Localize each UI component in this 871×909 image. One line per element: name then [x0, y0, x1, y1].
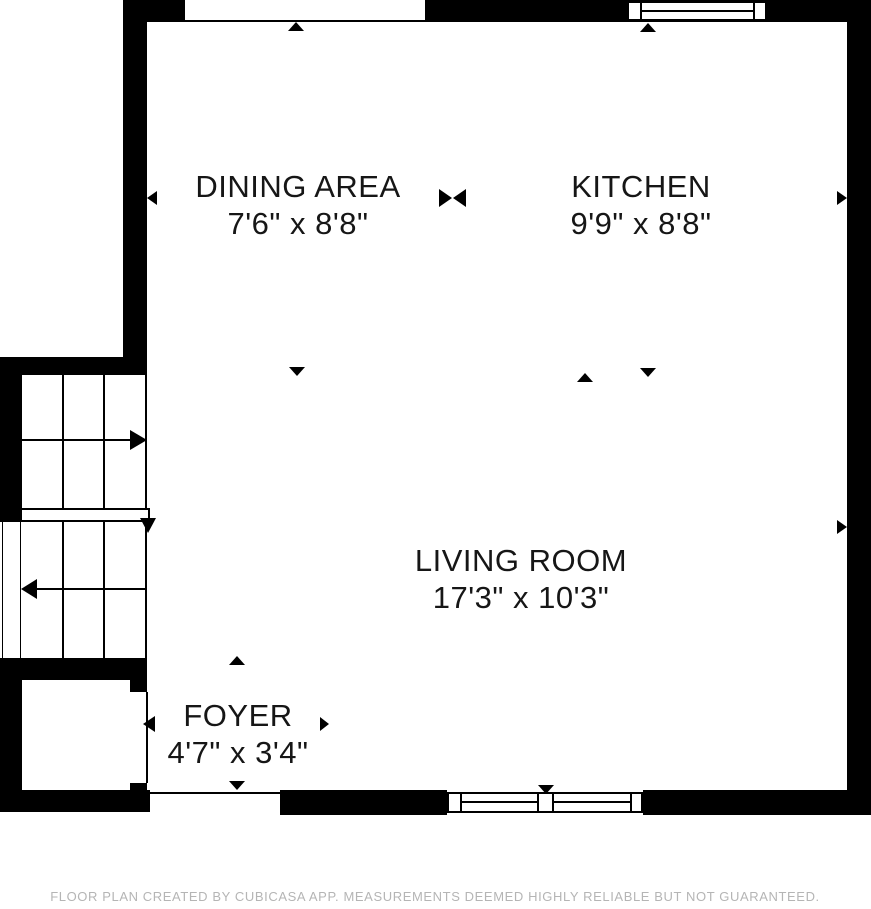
room-label-foyer: FOYER 4'7" x 3'4" [167, 697, 308, 771]
wall-bottom-right-segment [643, 790, 871, 815]
flow-arrow-up-icon [577, 373, 593, 382]
wall-closet-right-upper [130, 658, 147, 692]
window-bottom [447, 792, 643, 813]
flow-arrow-down-icon [640, 368, 656, 377]
flow-arrow-up-icon [288, 22, 304, 31]
wall-closet-right-lower [130, 783, 147, 812]
foyer-opening-arrow-icon [320, 717, 329, 731]
stair-tread-line [103, 375, 105, 508]
opening-line-foyer-entry [150, 792, 280, 794]
wall-arrow-right-icon [837, 191, 847, 205]
floor-plan: DINING AREA 7'6" x 8'8" KITCHEN 9'9" x 8… [0, 0, 871, 909]
bowtie-left-half [453, 189, 466, 207]
room-name: DINING AREA [195, 168, 400, 205]
wall-arrow-left-icon [147, 191, 157, 205]
room-label-living-room: LIVING ROOM 17'3" x 10'3" [415, 542, 627, 616]
flow-arrow-up-icon [229, 656, 245, 665]
stair-arrow-right-icon [130, 430, 147, 450]
stair-arrow-down-icon [140, 518, 156, 533]
attribution-text: FLOOR PLAN CREATED BY CUBICASA APP. MEAS… [50, 889, 820, 904]
room-dimensions: 9'9" x 8'8" [570, 205, 711, 242]
stair-arrow-shaft-down-flight [36, 588, 146, 590]
window-top [627, 1, 767, 21]
stair-landing [20, 508, 150, 522]
window-center-line [554, 801, 630, 803]
closet-door-line [146, 692, 148, 783]
opening-line-top [185, 20, 425, 22]
room-dimensions: 17'3" x 10'3" [415, 579, 627, 616]
wall-closet-bottom [0, 790, 150, 812]
stair-arrow-shaft-up-flight [22, 439, 134, 441]
flow-arrow-down-icon [229, 781, 245, 790]
wall-left-outer-lower [0, 658, 22, 812]
window-center-line [462, 801, 537, 803]
flow-arrow-up-icon [640, 23, 656, 32]
room-divider-bowtie-icon [439, 189, 466, 207]
wall-bottom-left-segment [280, 790, 447, 815]
room-name: LIVING ROOM [415, 542, 627, 579]
window-frame-line [753, 3, 755, 19]
stair-tread-line [103, 522, 105, 658]
stair-edge-line [145, 522, 147, 658]
room-name: FOYER [167, 697, 308, 734]
wall-stair-top [0, 357, 147, 375]
stair-edge-line [2, 522, 3, 658]
room-dimensions: 7'6" x 8'8" [195, 205, 400, 242]
stair-tread-line [62, 375, 64, 508]
room-dimensions: 4'7" x 3'4" [167, 734, 308, 771]
wall-stair-bottom [0, 658, 147, 680]
flow-arrow-down-icon [289, 367, 305, 376]
stair-arrow-left-icon [21, 579, 37, 599]
window-mullion-line [537, 794, 539, 811]
window-frame-line [630, 794, 632, 811]
room-name: KITCHEN [570, 168, 711, 205]
closet-door-arrow-icon [143, 716, 155, 732]
wall-right [847, 0, 871, 815]
wall-arrow-right-icon [837, 520, 847, 534]
bowtie-right-half [439, 189, 452, 207]
room-label-dining-area: DINING AREA 7'6" x 8'8" [195, 168, 400, 242]
flow-arrow-down-icon [538, 785, 554, 794]
staircase [0, 375, 150, 658]
stair-tread-line [62, 522, 64, 658]
wall-left-main [123, 0, 147, 375]
window-center-line [642, 10, 753, 12]
room-label-kitchen: KITCHEN 9'9" x 8'8" [570, 168, 711, 242]
